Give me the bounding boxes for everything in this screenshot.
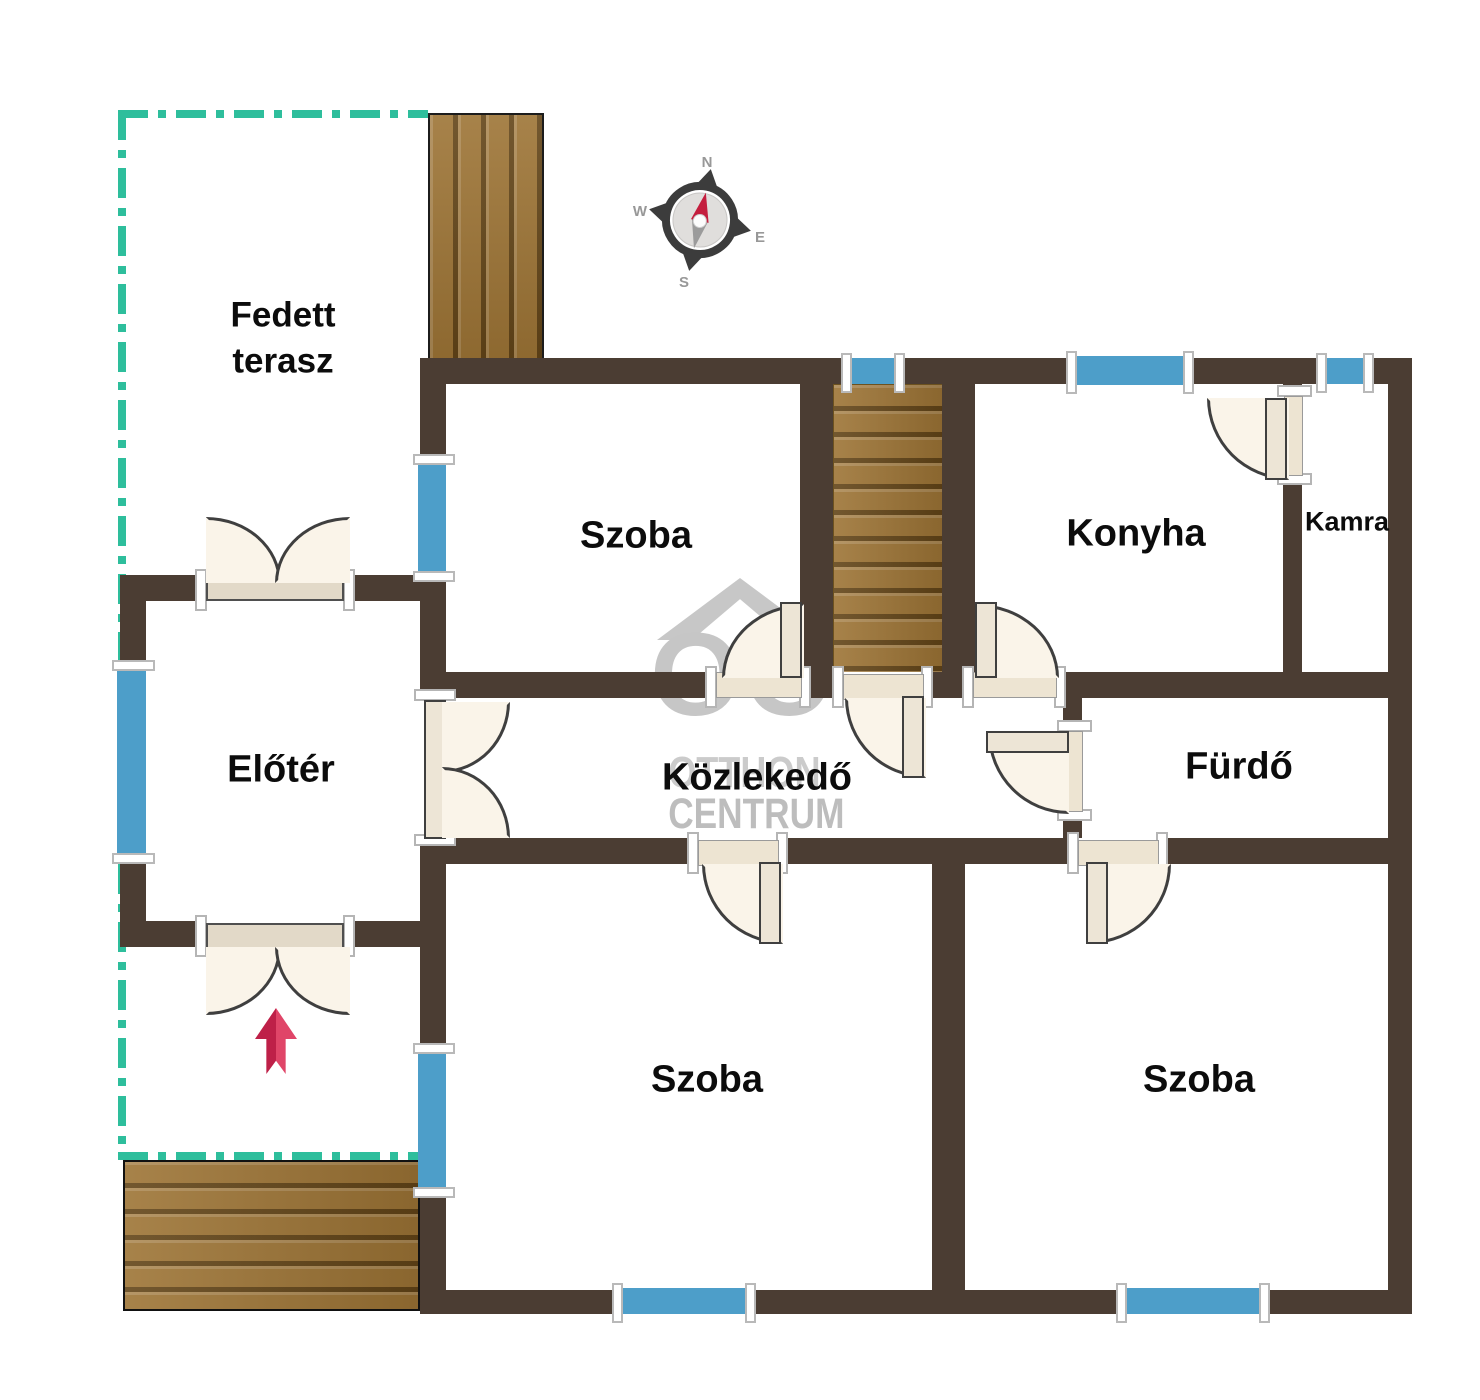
window-room-top-left [418, 464, 446, 572]
window-pantry-top [1326, 358, 1364, 384]
door-panel-room-top [780, 602, 802, 678]
door-panel-bathroom [986, 731, 1069, 753]
terrace-line1: Fedett [231, 293, 336, 339]
compass-label-n: N [702, 154, 713, 171]
compass-label-e: E [755, 229, 765, 246]
door-panel-kitchen [975, 602, 997, 678]
window-room-bl-bottom [622, 1288, 746, 1314]
room-label-bathroom: Fürdő [1185, 746, 1293, 789]
window-kitchen-top [1076, 356, 1184, 385]
door-leaf-foyer-terrace-right [275, 517, 350, 583]
window-stairs-top [851, 358, 895, 384]
window-foyer-left [117, 670, 146, 854]
room-label-terrace: Fedett terasz [231, 293, 336, 384]
door-panel-stairs [902, 696, 924, 778]
door-threshold-entrance [206, 923, 344, 949]
compass-label-w: W [633, 203, 648, 220]
wall-room-stairs-divider [800, 384, 833, 672]
room-label-foyer: Előtér [227, 749, 335, 792]
room-label-room-bl: Szoba [651, 1059, 763, 1102]
room-label-room-br: Szoba [1143, 1059, 1255, 1102]
floor-plan: OC OTTHON CENTRUM [0, 0, 1480, 1400]
door-leaf-foyer-terrace-left [206, 517, 281, 583]
door-panel-room-br [1086, 862, 1108, 944]
room-label-hallway: Közlekedő [662, 757, 852, 800]
door-leaf-foyer-hallway-bottom [442, 767, 510, 838]
door-leaf-entrance-left [206, 947, 281, 1015]
wall-stairs-kitchen-divider [942, 384, 975, 672]
window-room-br-bottom [1126, 1288, 1260, 1314]
window-room-bl-left [418, 1053, 446, 1188]
wall-hallway-bottom [446, 838, 1412, 864]
compass-icon: N E S W [630, 150, 770, 290]
wall-top [420, 358, 1412, 384]
room-label-pantry: Kamra [1305, 507, 1389, 538]
door-leaf-entrance-right [275, 947, 350, 1015]
terrace-line2: terasz [231, 338, 336, 384]
deck-top [428, 113, 544, 364]
door-panel-room-bl [759, 862, 781, 944]
door-leaf-foyer-hallway-top [442, 702, 510, 773]
staircase [833, 384, 944, 676]
deck-bottom [123, 1160, 420, 1311]
door-panel-pantry [1265, 398, 1287, 480]
terrace-boundary-top [118, 110, 428, 118]
terrace-boundary-bottom [118, 1152, 420, 1160]
entrance-arrow-icon [255, 1008, 297, 1074]
room-label-room-top: Szoba [580, 515, 692, 558]
wall-right [1388, 358, 1412, 1314]
wall-bottom-rooms-divider [932, 864, 965, 1290]
room-label-kitchen: Konyha [1066, 513, 1205, 556]
compass-label-s: S [679, 274, 689, 290]
